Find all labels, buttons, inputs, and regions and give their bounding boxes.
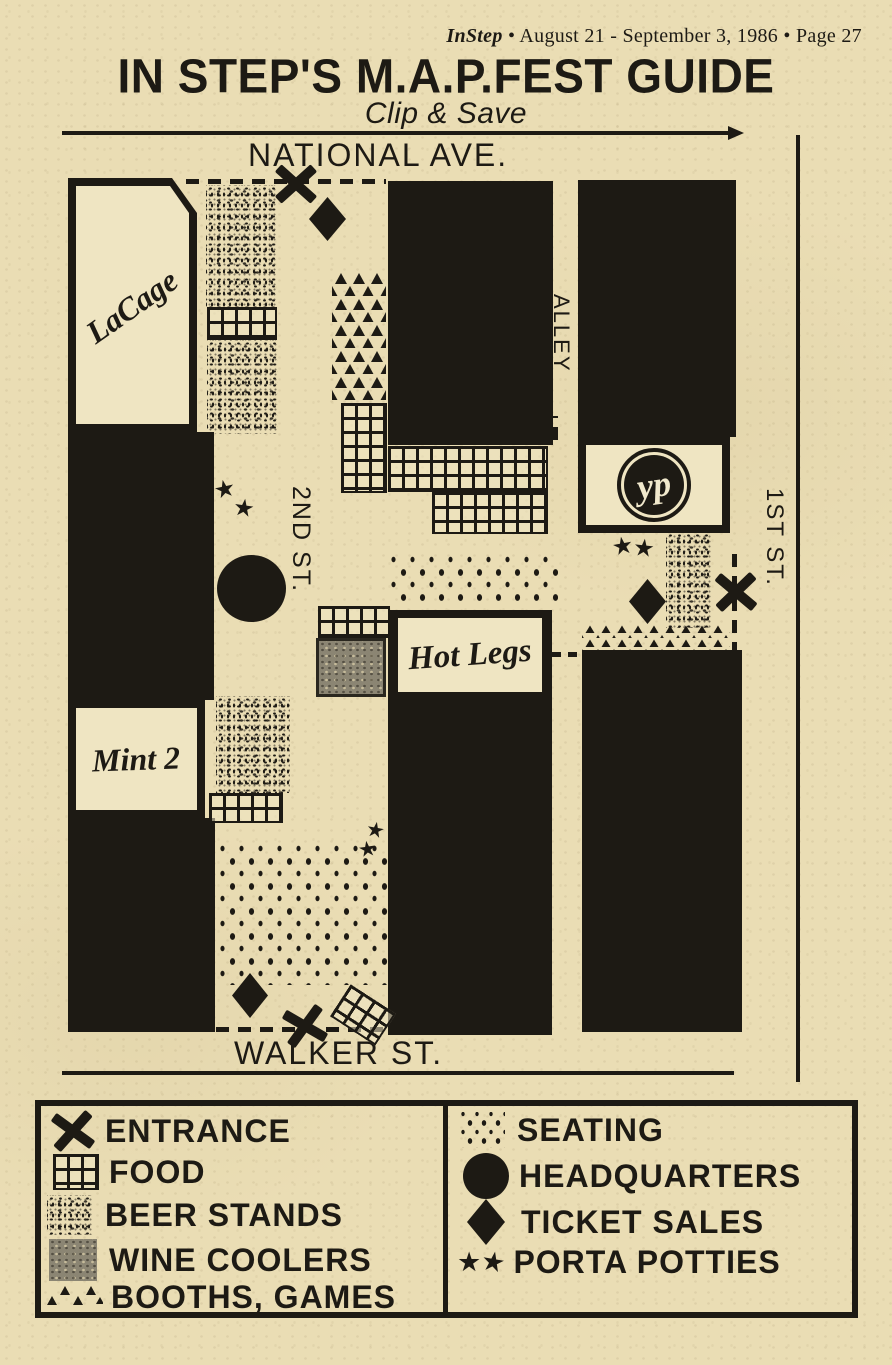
food-area-5 <box>318 606 390 638</box>
legend-item-wine-coolers: WINE COOLERS <box>49 1238 372 1282</box>
booths-triangles-icon <box>45 1284 103 1310</box>
street-label-2nd-st: 2ND ST. <box>286 486 315 593</box>
porta-potty-star: ★ <box>231 496 256 523</box>
entrance-x-icon <box>49 1110 97 1152</box>
legend-item-ticket-sales: TICKET SALES <box>467 1198 764 1246</box>
legend-label: HEADQUARTERS <box>519 1158 801 1195</box>
building-block-mid-north <box>388 181 553 445</box>
legend-item-beer-stands: BEER STANDS <box>47 1194 343 1236</box>
building-block-west-2 <box>68 818 215 1032</box>
legend-item-food: FOOD <box>53 1152 205 1192</box>
walker-st-line <box>62 1071 734 1075</box>
headquarters-marker <box>217 555 286 622</box>
seating-dots-icon <box>461 1112 505 1148</box>
porta-star-icon: ★ <box>457 1249 481 1276</box>
legend-label: BEER STANDS <box>105 1197 343 1234</box>
ticket-sales-marker-east <box>629 579 666 624</box>
headquarters-circle-icon <box>463 1153 509 1199</box>
street-label-1st-st: 1ST ST. <box>760 488 788 587</box>
booths-games-area-west <box>332 270 386 402</box>
legend-label: TICKET SALES <box>521 1204 764 1241</box>
hotlegs-alley-dash <box>552 652 580 657</box>
seating-area-1 <box>390 556 558 606</box>
legend-label: SEATING <box>517 1112 664 1149</box>
porta-potty-star: ★ <box>632 536 656 562</box>
yp-logo-text: yp <box>634 462 673 508</box>
street-label-walker-st: WALKER ST. <box>234 1035 443 1072</box>
venue-label-hotlegs: Hot Legs <box>407 632 533 678</box>
beer-stand-area-4 <box>666 532 712 628</box>
food-area-1 <box>207 307 277 340</box>
building-lacage: LaCage <box>68 178 197 432</box>
alley-dashed-segment <box>553 416 558 440</box>
wine-swatch-icon <box>49 1239 97 1281</box>
beer-stand-area-2 <box>207 340 278 434</box>
map-legend: ENTRANCE FOOD BEER STANDS WINE COOLERS B… <box>35 1100 858 1318</box>
ticket-diamond-icon <box>467 1199 505 1245</box>
entrance-marker-walker-st <box>281 1002 329 1050</box>
legend-item-headquarters: HEADQUARTERS <box>463 1152 801 1200</box>
legend-item-booths-games: BOOTHS, GAMES <box>45 1282 396 1312</box>
legend-divider <box>443 1106 448 1312</box>
beer-stand-area-1 <box>206 185 276 307</box>
legend-label: FOOD <box>109 1154 205 1191</box>
booths-games-area-east <box>582 624 730 652</box>
entrance-marker-national-ave <box>272 160 320 208</box>
legend-item-entrance: ENTRANCE <box>49 1110 291 1152</box>
building-yp: yp <box>578 437 730 533</box>
legend-item-porta-potties: ★ ★ PORTA POTTIES <box>457 1246 781 1278</box>
legend-label: PORTA POTTIES <box>513 1244 780 1281</box>
newspaper-page: InStep • August 21 - September 3, 1986 •… <box>0 0 892 1365</box>
building-block-west-1 <box>68 432 214 700</box>
building-block-east-south <box>582 650 742 1032</box>
building-mint2: Mint 2 <box>68 700 205 818</box>
legend-item-seating: SEATING <box>461 1110 664 1150</box>
food-area-3 <box>388 446 548 492</box>
porta-star-icon: ★ <box>479 1247 508 1278</box>
seating-area-2 <box>219 845 389 985</box>
legend-label: ENTRANCE <box>105 1113 291 1150</box>
legend-label: BOOTHS, GAMES <box>111 1279 396 1316</box>
food-grid-icon <box>53 1154 99 1190</box>
wine-coolers-area <box>316 638 386 697</box>
beer-stipple-icon <box>47 1195 93 1235</box>
fest-map: NATIONAL AVE. 2ND ST. ALLEY 1ST ST. WALK… <box>0 0 892 1100</box>
building-hotlegs: Hot Legs <box>388 610 552 1035</box>
first-st-line <box>796 135 800 1082</box>
beer-stand-area-3 <box>216 696 290 793</box>
food-area-4 <box>432 492 548 534</box>
yp-logo: yp <box>617 448 691 522</box>
venue-label-mint2: Mint 2 <box>92 739 181 779</box>
food-area-2 <box>341 403 387 493</box>
entrance-marker-1st-st <box>710 566 761 617</box>
food-area-6 <box>209 793 283 823</box>
legend-label: WINE COOLERS <box>109 1242 372 1279</box>
building-block-east-north <box>578 180 736 437</box>
